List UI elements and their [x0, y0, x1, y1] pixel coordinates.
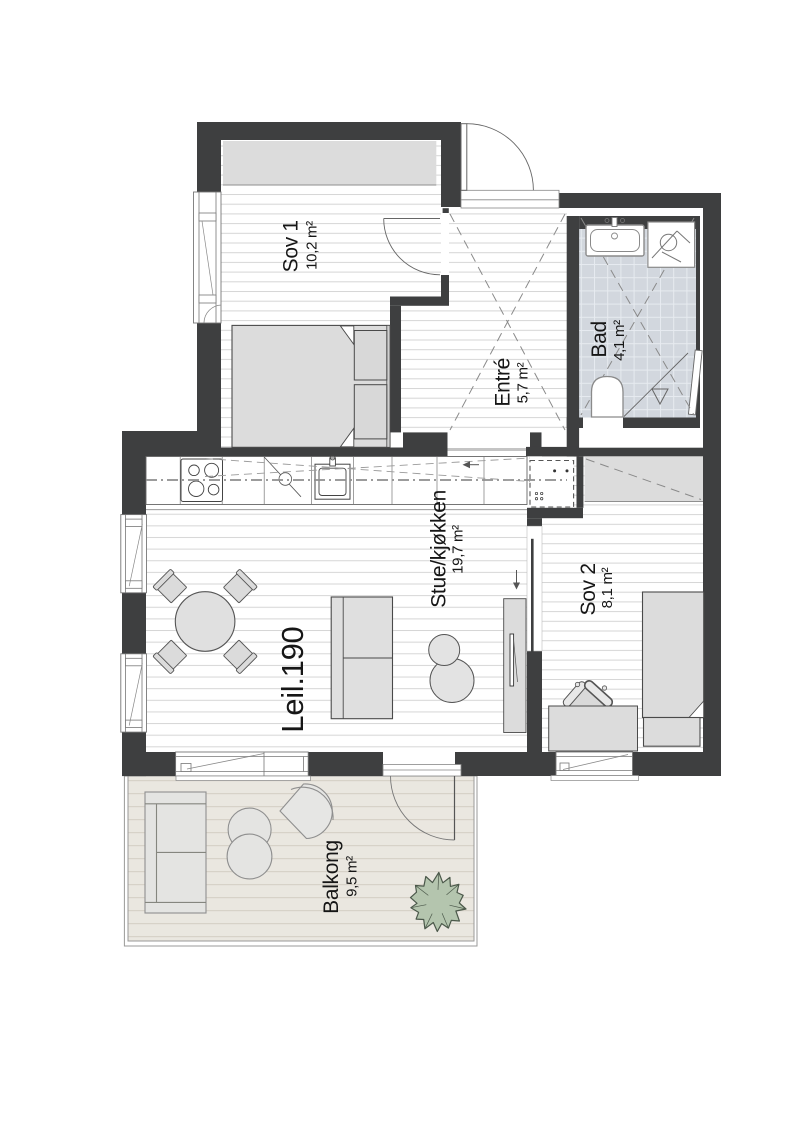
- svg-text:Sov 2: Sov 2: [577, 563, 600, 615]
- svg-text:4,1 m²: 4,1 m²: [611, 320, 628, 361]
- svg-text:10,2 m²: 10,2 m²: [304, 221, 321, 270]
- svg-text:Bad: Bad: [588, 321, 611, 357]
- svg-text:Sov 1: Sov 1: [280, 220, 303, 272]
- svg-text:5,7 m²: 5,7 m²: [515, 362, 532, 403]
- svg-text:9,5 m²: 9,5 m²: [344, 856, 361, 897]
- svg-text:Leil.190: Leil.190: [275, 626, 310, 732]
- svg-text:19,7 m²: 19,7 m²: [450, 525, 467, 574]
- svg-text:Entré: Entré: [491, 358, 514, 407]
- svg-text:Balkong: Balkong: [320, 840, 343, 914]
- svg-text:8,1 m²: 8,1 m²: [599, 567, 616, 608]
- svg-text:Stue/kjøkken: Stue/kjøkken: [427, 490, 450, 608]
